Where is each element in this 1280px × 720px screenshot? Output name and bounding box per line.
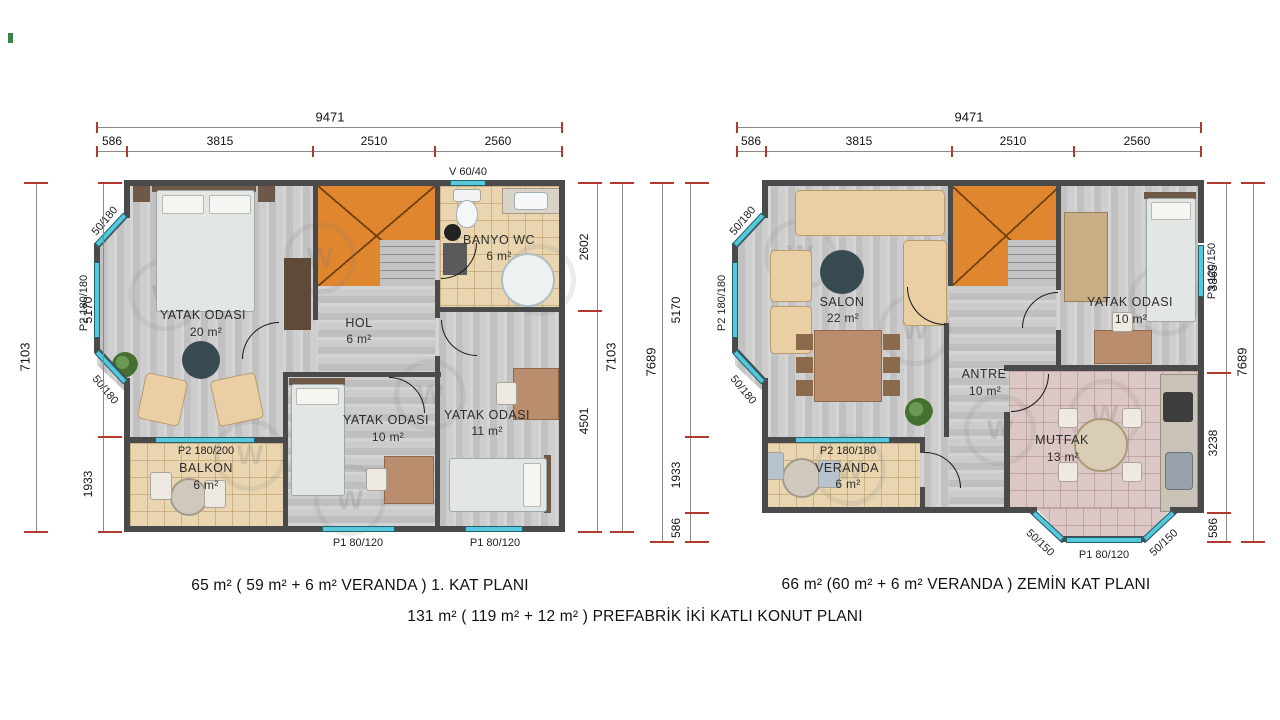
- bed-pillow: [523, 463, 541, 507]
- dim-segment: 2510: [361, 134, 388, 148]
- wall-top: [124, 180, 565, 186]
- dim-line-left-inner: [103, 183, 104, 532]
- dim-tick: [1200, 122, 1202, 133]
- dim-total-width: 9471: [316, 110, 345, 125]
- dim-tick: [561, 122, 563, 133]
- stair-landing: [380, 240, 435, 286]
- wall-bottom-left: [762, 507, 1037, 513]
- dim-tick: [578, 531, 602, 533]
- window-label-bay-mid: P2 180/180: [716, 275, 728, 331]
- plant: [905, 398, 933, 426]
- armchair: [210, 372, 265, 428]
- caption-first-floor: 65 m² ( 59 m² + 6 m² VERANDA ) 1. KAT PL…: [191, 577, 529, 595]
- stair-landing: [1008, 240, 1060, 286]
- wall-bedroom-stairs: [313, 180, 318, 320]
- dim-tick: [24, 182, 48, 184]
- room-label-bedroom: YATAK ODASI: [1087, 295, 1173, 309]
- caption-ground-floor: 66 m² (60 m² + 6 m² VERANDA ) ZEMİN KAT …: [782, 576, 1151, 594]
- dim-tick: [685, 436, 709, 438]
- nightstand: [133, 186, 150, 202]
- dim-right-segment: 586: [1206, 518, 1220, 538]
- room-label-kitchen: MUTFAK: [1035, 433, 1089, 447]
- wall-bedroom-left-lower: [1056, 330, 1061, 368]
- floor-plan-sheet: { "watermark": "W", "captions": { "left"…: [0, 0, 1280, 720]
- dim-tick: [1207, 372, 1231, 374]
- dim-tick: [1207, 512, 1231, 514]
- dim-tick: [1241, 541, 1265, 543]
- dining-chair: [796, 380, 813, 396]
- room-label-living: SALON: [820, 295, 865, 309]
- desk-chair: [366, 468, 387, 491]
- wardrobe: [284, 258, 311, 330]
- dining-chair: [883, 380, 900, 396]
- dim-tick: [650, 541, 674, 543]
- room-area-bedroom: 10 m²: [1115, 312, 1147, 326]
- dim-left-segment: 5170: [81, 297, 95, 324]
- caption-total: 131 m² ( 119 m² + 12 m² ) PREFABRİK İKİ …: [407, 608, 862, 626]
- kitchen-chair: [1058, 462, 1078, 482]
- wall-rooms-right-lower: [435, 356, 440, 526]
- wall-rooms-right-upper: [435, 180, 440, 240]
- bed-pillow: [209, 195, 251, 214]
- dim-left-segment: 5170: [669, 297, 683, 324]
- dim-tick: [951, 146, 953, 157]
- window-balcony: [155, 437, 255, 443]
- dim-tick: [98, 531, 122, 533]
- wall-veranda-right-lower: [920, 487, 925, 513]
- dim-segment: 2510: [1000, 134, 1027, 148]
- dim-right-segment: 3865: [1206, 265, 1220, 292]
- room-label-bedroom-mid: YATAK ODASI: [343, 413, 429, 427]
- dim-line-total: [737, 127, 1201, 128]
- dim-left-segment: 1933: [81, 471, 95, 498]
- dim-tick: [98, 182, 122, 184]
- window-label-bottom-right: P1 80/120: [470, 537, 520, 549]
- dim-line-right-outer: [622, 183, 623, 532]
- wall-salon-entry: [944, 323, 949, 437]
- wall-veranda-right-upper: [920, 437, 925, 453]
- dim-left-outer: 7103: [18, 343, 33, 372]
- kitchen-chair: [1122, 408, 1142, 428]
- dim-line-right-outer: [1253, 183, 1254, 542]
- dim-left-segment: 586: [669, 518, 683, 538]
- wall-kitchen-top: [1004, 365, 1204, 371]
- kitchen-sink: [1165, 452, 1193, 490]
- wall-bedroom-mid-left: [283, 372, 288, 526]
- dim-tick: [1207, 182, 1231, 184]
- room-area-bedroom-mid: 10 m²: [372, 430, 404, 444]
- dim-tick: [685, 541, 709, 543]
- dim-left-segment: 1933: [669, 462, 683, 489]
- window-label-balcony: P2 180/200: [178, 445, 234, 457]
- window-bottom-right: [465, 526, 523, 532]
- bed-pillow: [162, 195, 204, 214]
- room-area-kitchen: 13 m²: [1047, 450, 1079, 464]
- room-label-bath: BANYO WC: [463, 233, 535, 247]
- room-area-bedroom-right: 11 m²: [471, 424, 502, 438]
- window-vent: [450, 180, 486, 186]
- dim-line-right-inner: [597, 183, 598, 532]
- armchair: [770, 250, 812, 302]
- dim-tick: [98, 436, 122, 438]
- dim-tick: [1241, 182, 1265, 184]
- dim-segment: 3815: [207, 134, 234, 148]
- dim-tick: [650, 182, 674, 184]
- window-bottom-left: [322, 526, 395, 532]
- dim-line-left-outer: [662, 183, 663, 542]
- room-area-veranda: 6 m²: [835, 477, 860, 491]
- dining-chair: [796, 334, 813, 350]
- window-label-kitchen-bottom: P1 80/120: [1079, 549, 1129, 561]
- dim-tick: [578, 182, 602, 184]
- room-label-entry: ANTRE: [962, 367, 1007, 381]
- wall-right: [559, 180, 565, 532]
- dim-tick: [765, 146, 767, 157]
- dim-tick: [96, 122, 98, 133]
- dim-tick: [24, 531, 48, 533]
- dim-right-segment: 2602: [577, 234, 591, 261]
- room-label-hall: HOL: [345, 316, 372, 330]
- room-label-veranda: VERANDA: [815, 461, 879, 475]
- dim-right-outer: 7689: [1235, 348, 1250, 377]
- dim-line-segments: [737, 151, 1201, 152]
- desk-chair: [496, 382, 517, 405]
- kitchen-chair: [1058, 408, 1078, 428]
- dim-tick: [736, 122, 738, 133]
- wall-kitchen-left: [1004, 412, 1010, 512]
- bed-pillow: [296, 388, 339, 405]
- window-label-vent: V 60/40: [449, 166, 487, 178]
- dim-tick: [434, 146, 436, 157]
- dim-right-segment: 3238: [1206, 430, 1220, 457]
- dim-tick: [610, 182, 634, 184]
- room-area-entry: 10 m²: [969, 384, 1001, 398]
- window-label-veranda: P2 180/180: [820, 445, 876, 457]
- window-kitchen-bottom: [1066, 537, 1142, 543]
- dim-segment: 2560: [1124, 134, 1151, 148]
- room-area-living: 22 m²: [827, 311, 859, 325]
- room-area-hall: 6 m²: [346, 332, 371, 346]
- wall-bath-bottom: [435, 307, 565, 312]
- dim-tick: [126, 146, 128, 157]
- desk: [384, 456, 434, 504]
- room-label-balcony: BALKON: [179, 461, 233, 475]
- dim-left-outer: 7689: [644, 348, 659, 377]
- nightstand: [258, 186, 275, 202]
- dim-line-left-inner: [690, 183, 691, 542]
- dim-tick: [561, 146, 563, 157]
- dining-chair: [883, 334, 900, 350]
- coffee-table: [820, 250, 864, 294]
- dim-tick: [736, 146, 738, 157]
- dim-tick: [685, 182, 709, 184]
- closet: [1064, 212, 1108, 302]
- dim-segment: 3815: [846, 134, 873, 148]
- laundry-basket: [444, 224, 461, 241]
- dim-segment: 2560: [485, 134, 512, 148]
- room-label-bedroom-main: YATAK ODASI: [160, 308, 246, 322]
- window-bay-mid: [732, 262, 738, 338]
- dim-line-total: [97, 127, 562, 128]
- wall-right-lower: [1198, 297, 1204, 513]
- sofa-large: [795, 190, 945, 236]
- window-veranda: [795, 437, 890, 443]
- room-area-balcony: 6 m²: [193, 478, 218, 492]
- dim-line-left-outer: [36, 183, 37, 532]
- dim-total-width: 9471: [955, 110, 984, 125]
- scan-artifact: [8, 33, 13, 43]
- dim-tick: [1207, 541, 1231, 543]
- dim-segment: 586: [102, 134, 122, 148]
- room-area-bedroom-main: 20 m²: [190, 325, 222, 339]
- dim-tick: [685, 512, 709, 514]
- wall-right-upper: [1198, 180, 1204, 243]
- room-area-bath: 6 m²: [486, 249, 511, 263]
- dim-tick: [96, 146, 98, 157]
- sink-basin: [514, 192, 548, 210]
- dining-chair: [796, 357, 813, 373]
- dim-tick: [1200, 146, 1202, 157]
- dim-line-right-inner: [1226, 183, 1227, 542]
- dim-line-segments: [97, 151, 562, 152]
- dining-chair: [883, 357, 900, 373]
- wall-top: [762, 180, 1204, 186]
- kitchen-chair: [1122, 462, 1142, 482]
- window-label-bottom-left: P1 80/120: [333, 537, 383, 549]
- dim-tick: [578, 310, 602, 312]
- stove: [1163, 392, 1193, 422]
- window-bedroom-side: [1198, 245, 1204, 297]
- wall-bedroom-mid-top: [283, 372, 441, 377]
- dim-tick: [610, 531, 634, 533]
- dining-table: [814, 330, 882, 402]
- dim-tick: [312, 146, 314, 157]
- toilet-bowl: [456, 200, 478, 228]
- wall-left-lower: [762, 378, 768, 513]
- desk: [1094, 330, 1152, 364]
- balcony-chair: [150, 472, 172, 500]
- wall-left-lower: [124, 378, 130, 526]
- bed-pillow: [1151, 202, 1191, 220]
- dim-tick: [1073, 146, 1075, 157]
- dim-right-segment: 4501: [577, 408, 591, 435]
- wall-rooms-right-mid: [435, 280, 440, 318]
- round-rug: [182, 341, 220, 379]
- wall-salon-stairs: [948, 180, 953, 286]
- dim-right-outer: 7103: [604, 343, 619, 372]
- wall-bedroom-left-upper: [1056, 180, 1061, 290]
- room-label-bedroom-right: YATAK ODASI: [444, 408, 530, 422]
- dim-segment: 586: [741, 134, 761, 148]
